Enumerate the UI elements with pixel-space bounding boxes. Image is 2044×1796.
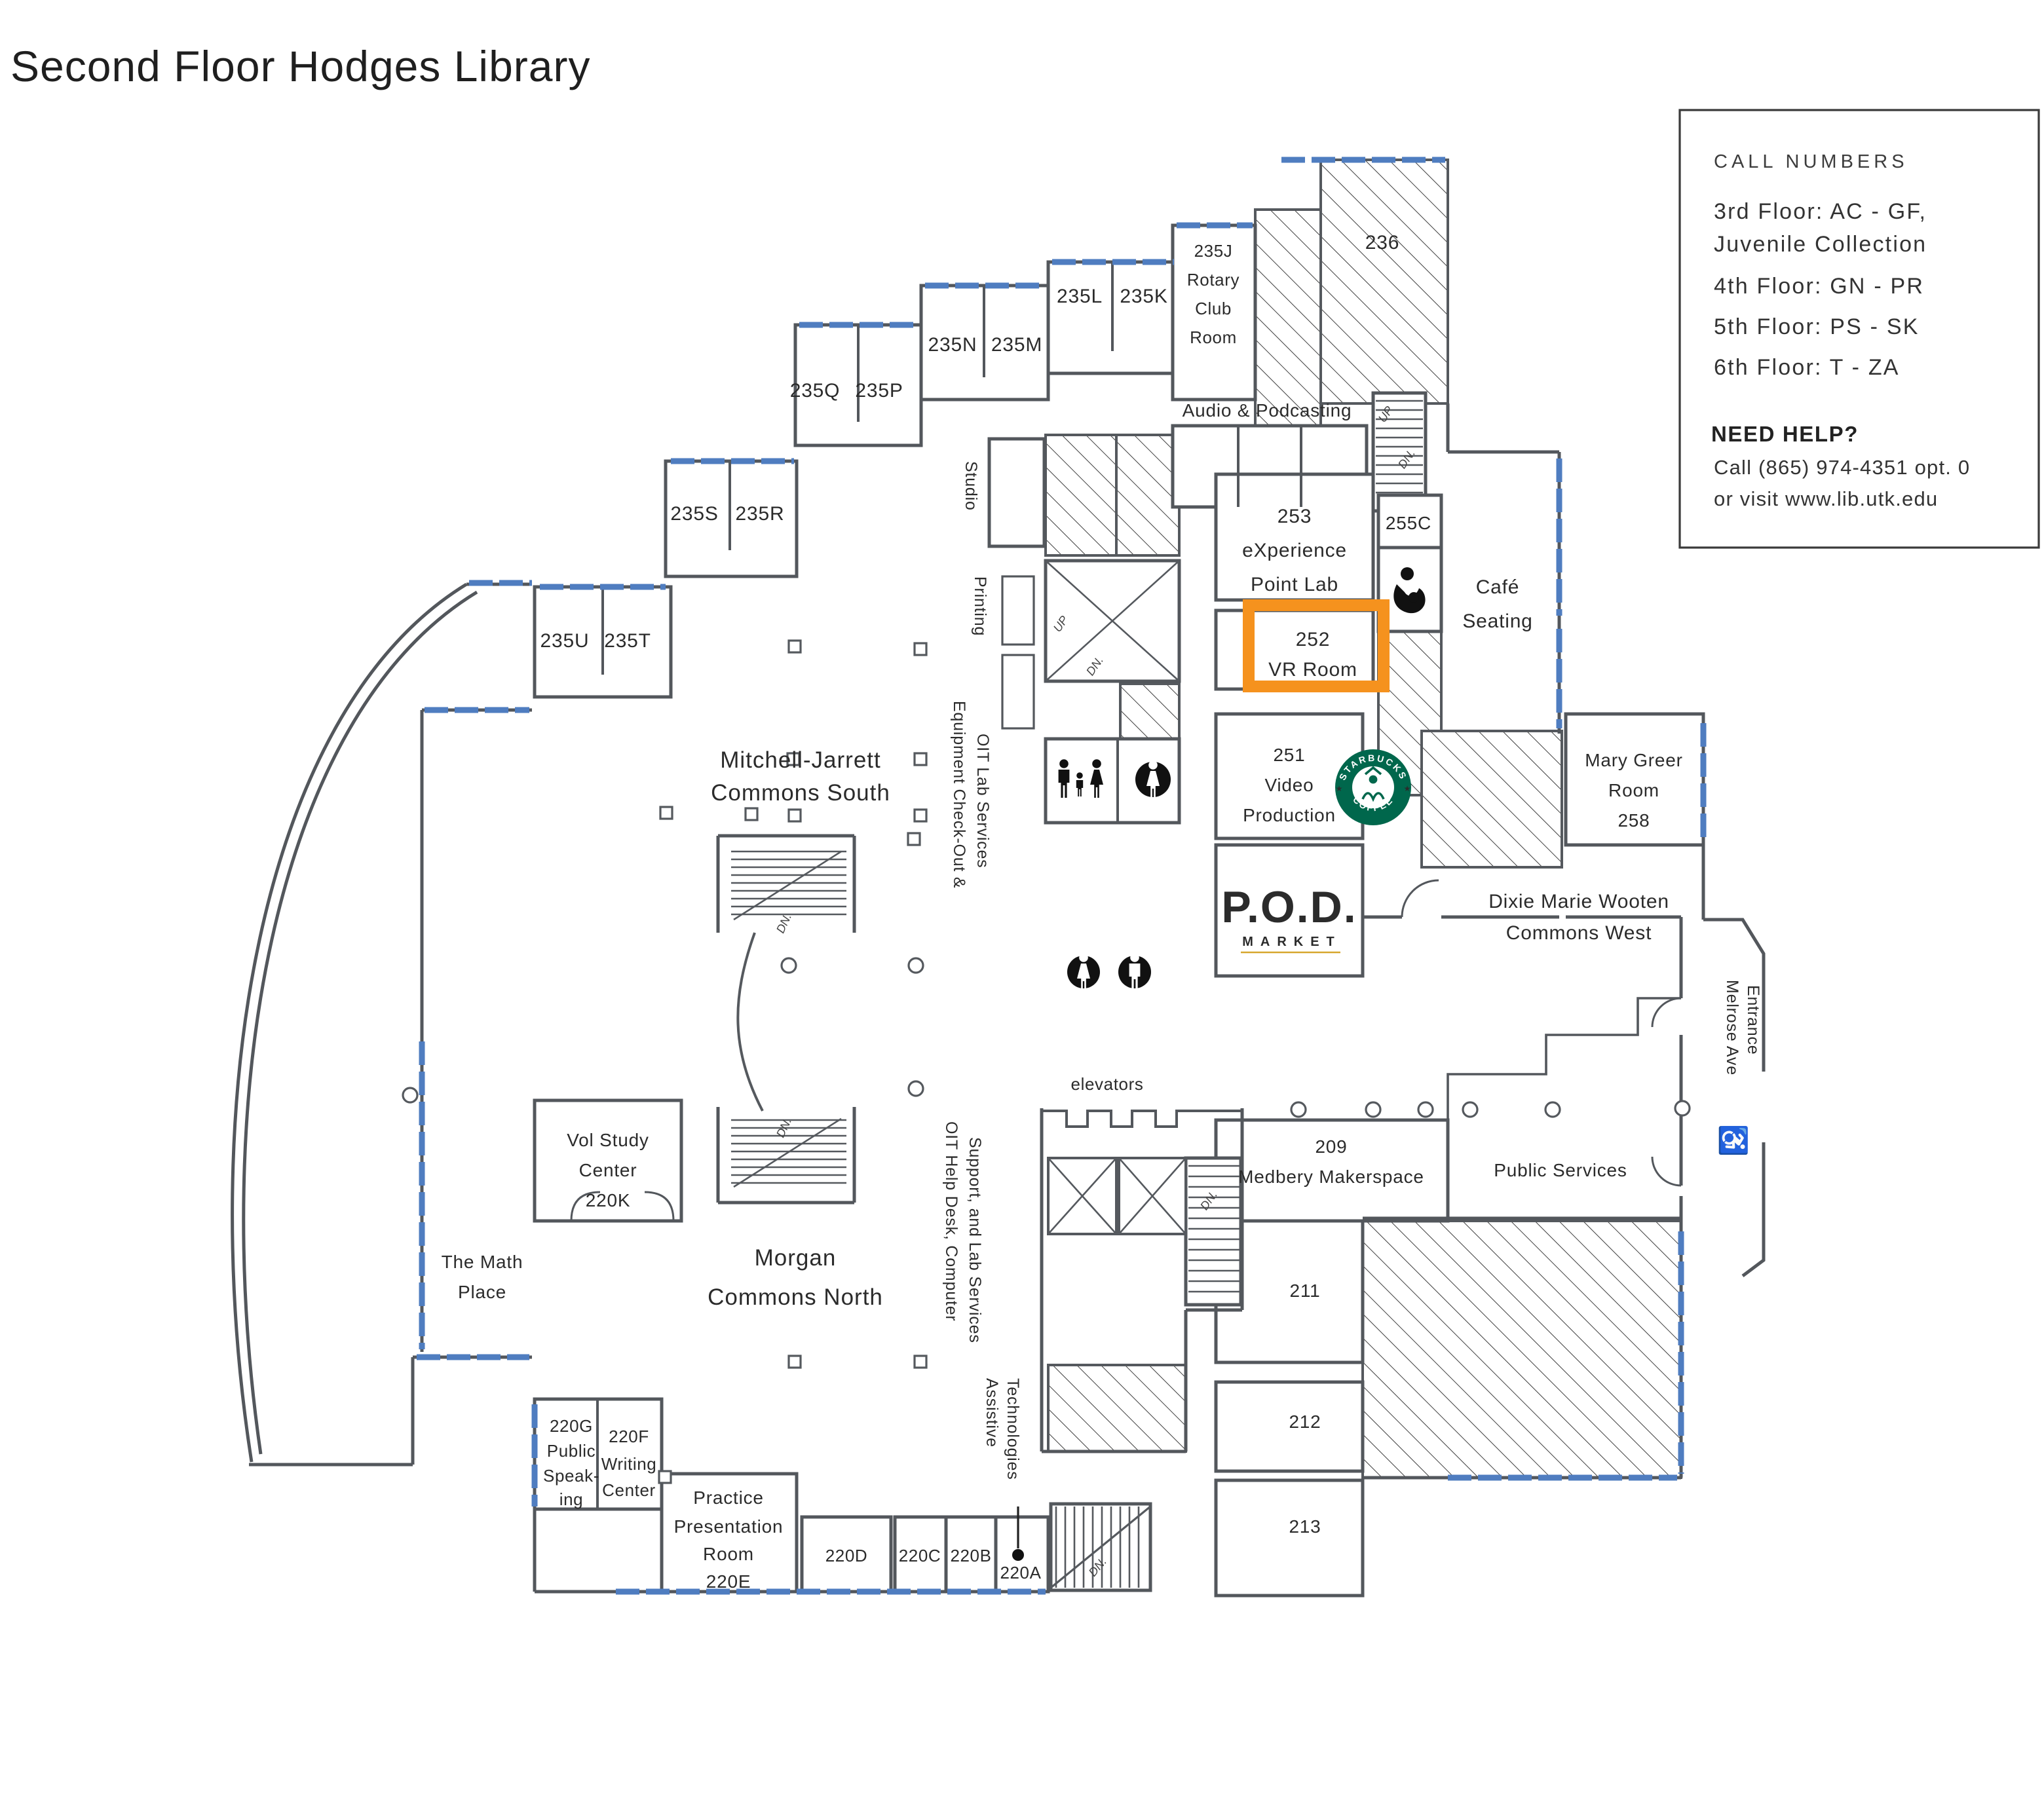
label-oit-help-desk: Support, and Lab Services bbox=[966, 1137, 984, 1343]
room-label-209: 209 bbox=[1315, 1136, 1347, 1157]
room-label-258: Mary Greer bbox=[1585, 750, 1683, 770]
area-label-math-place: Place bbox=[458, 1282, 506, 1302]
area-label-public-services: Public Services bbox=[1494, 1160, 1627, 1180]
room-label-213: 213 bbox=[1289, 1516, 1321, 1537]
legend-line: 6th Floor: T - ZA bbox=[1714, 355, 1900, 380]
starbucks-star: ★ bbox=[1336, 784, 1343, 793]
room-label-235P: 235P bbox=[855, 380, 903, 402]
room-label-235J: Room bbox=[1190, 327, 1237, 347]
room-label-258: 258 bbox=[1618, 810, 1650, 831]
room-label-235J: Club bbox=[1195, 299, 1232, 318]
pod-logo-main: P.O.D. bbox=[1221, 882, 1357, 932]
label-melrose-entrance: Entrance bbox=[1744, 985, 1762, 1055]
label-assistive-technologies: Technologies bbox=[1004, 1378, 1022, 1480]
room-label-251: Video bbox=[1264, 775, 1314, 795]
stair-elevator-lobby bbox=[1186, 1158, 1241, 1305]
room-label-235T: 235T bbox=[604, 630, 651, 652]
room-label-253: Point Lab bbox=[1251, 574, 1338, 595]
legend-heading: CALL NUMBERS bbox=[1714, 151, 1908, 172]
room-label-220E: Presentation bbox=[674, 1516, 784, 1537]
legend-line: 3rd Floor: AC - GF, bbox=[1714, 199, 1927, 224]
area-label-math-place: The Math bbox=[442, 1252, 523, 1272]
room-label-220F: Center bbox=[602, 1480, 656, 1500]
room-label-235L: 235L bbox=[1057, 286, 1103, 307]
room-label-235K: 235K bbox=[1120, 286, 1167, 307]
starbucks-logo: STARBUCKS COFFEE ★ ★ bbox=[1335, 749, 1411, 825]
room-236-hatch bbox=[1321, 160, 1448, 403]
room-label-220F: 220F bbox=[609, 1427, 649, 1446]
page-title: Second Floor Hodges Library bbox=[10, 42, 590, 90]
label-oit-help-desk: OIT Help Desk, Computer bbox=[942, 1121, 960, 1322]
label-printing: Printing bbox=[971, 576, 989, 636]
floor-plan: Second Floor Hodges Library CALL NUMBERS… bbox=[0, 0, 2044, 1796]
printing-station bbox=[1002, 655, 1034, 728]
room-213 bbox=[1216, 1480, 1363, 1596]
legend-line: 4th Floor: GN - PR bbox=[1714, 274, 1924, 299]
printing-station bbox=[1002, 576, 1034, 645]
room-label-220G: Public bbox=[547, 1441, 596, 1461]
room-label-211: 211 bbox=[1289, 1281, 1320, 1301]
room-label-235Q: 235Q bbox=[790, 380, 841, 402]
label-equipment-checkout: OIT Lab Services bbox=[974, 734, 992, 868]
room-label-209: Medbery Makerspace bbox=[1238, 1167, 1424, 1187]
label-melrose-entrance: Melrose Ave bbox=[1723, 980, 1741, 1076]
room-label-220E: 220E bbox=[706, 1571, 751, 1592]
room-label-220E: Room bbox=[703, 1544, 754, 1564]
room-label-220C: 220C bbox=[899, 1546, 941, 1565]
room-label-220F: Writing bbox=[601, 1454, 657, 1474]
label-equipment-checkout: Equipment Check-Out & bbox=[950, 701, 968, 888]
legend-line: Juvenile Collection bbox=[1714, 232, 1927, 257]
area-label-morgan: Commons North bbox=[708, 1284, 883, 1310]
room-label-220K: Vol Study bbox=[567, 1130, 649, 1150]
room-label-220K: Center bbox=[579, 1160, 637, 1180]
need-help-heading: NEED HELP? bbox=[1711, 422, 1859, 446]
room-label-235J: 235J bbox=[1194, 241, 1233, 261]
area-label-elevators: elevators bbox=[1071, 1074, 1144, 1094]
label-assistive-technologies: Assistive bbox=[983, 1378, 1001, 1448]
room-label-220A: 220A bbox=[1000, 1563, 1041, 1582]
room-label-251: Production bbox=[1243, 805, 1336, 825]
room-label-220G: ing bbox=[559, 1489, 584, 1509]
call-numbers-legend: CALL NUMBERS 3rd Floor: AC - GF, Juvenil… bbox=[1680, 110, 2039, 548]
area-label-cafe: Café bbox=[1476, 576, 1520, 598]
womens-restroom-icon bbox=[1067, 953, 1100, 992]
room-label-235U: 235U bbox=[540, 630, 590, 652]
area-label-mitchell-jarrett: Commons South bbox=[711, 780, 890, 806]
room-label-235R: 235R bbox=[736, 503, 785, 525]
area-label-dixie: Commons West bbox=[1506, 922, 1652, 944]
legend-line: 5th Floor: PS - SK bbox=[1714, 314, 1920, 339]
room-label-220K: 220K bbox=[586, 1190, 631, 1210]
area-label-mitchell-jarrett: Mitchell-Jarrett bbox=[720, 747, 880, 773]
room-label-255C: 255C bbox=[1386, 513, 1431, 533]
room-label-235N: 235N bbox=[928, 334, 977, 356]
pod-market-logo: P.O.D. MARKET bbox=[1221, 882, 1357, 952]
room-label-220G: 220G bbox=[550, 1416, 593, 1436]
room-label-220E: Practice bbox=[693, 1487, 764, 1508]
pod-logo-sub: MARKET bbox=[1242, 935, 1342, 949]
label-studio: Studio bbox=[962, 461, 980, 511]
starbucks-star: ★ bbox=[1404, 784, 1411, 793]
area-label-audio-podcasting: Audio & Podcasting bbox=[1183, 400, 1352, 421]
room-label-251: 251 bbox=[1273, 745, 1305, 765]
room-label-235S: 235S bbox=[670, 503, 718, 525]
room-label-253: 253 bbox=[1277, 506, 1312, 527]
room-label-235J: Rotary bbox=[1187, 270, 1240, 290]
mens-restroom-icon bbox=[1118, 953, 1151, 992]
room-label-253: eXperience bbox=[1242, 540, 1347, 561]
room-label-220G: Speak- bbox=[543, 1466, 599, 1486]
room-label-212: 212 bbox=[1289, 1412, 1321, 1432]
room-label-252: 252 bbox=[1296, 629, 1330, 650]
help-line: Call (865) 974-4351 opt. 0 bbox=[1714, 456, 1970, 479]
room-label-235M: 235M bbox=[991, 334, 1042, 356]
studio-booths bbox=[989, 439, 1044, 546]
room-label-220B: 220B bbox=[950, 1546, 991, 1565]
area-label-morgan: Morgan bbox=[755, 1245, 837, 1271]
room-label-252: VR Room bbox=[1268, 659, 1357, 681]
help-line: or visit www.lib.utk.edu bbox=[1714, 487, 1938, 510]
room-label-220D: 220D bbox=[825, 1546, 868, 1565]
room-label-258: Room bbox=[1608, 780, 1659, 800]
room-label-236: 236 bbox=[1365, 232, 1399, 253]
assistive-location-dot bbox=[1012, 1549, 1024, 1561]
wheelchair-icon: ♿ bbox=[1718, 1124, 1749, 1157]
area-label-cafe: Seating bbox=[1462, 610, 1532, 632]
area-label-dixie: Dixie Marie Wooten bbox=[1488, 891, 1669, 912]
